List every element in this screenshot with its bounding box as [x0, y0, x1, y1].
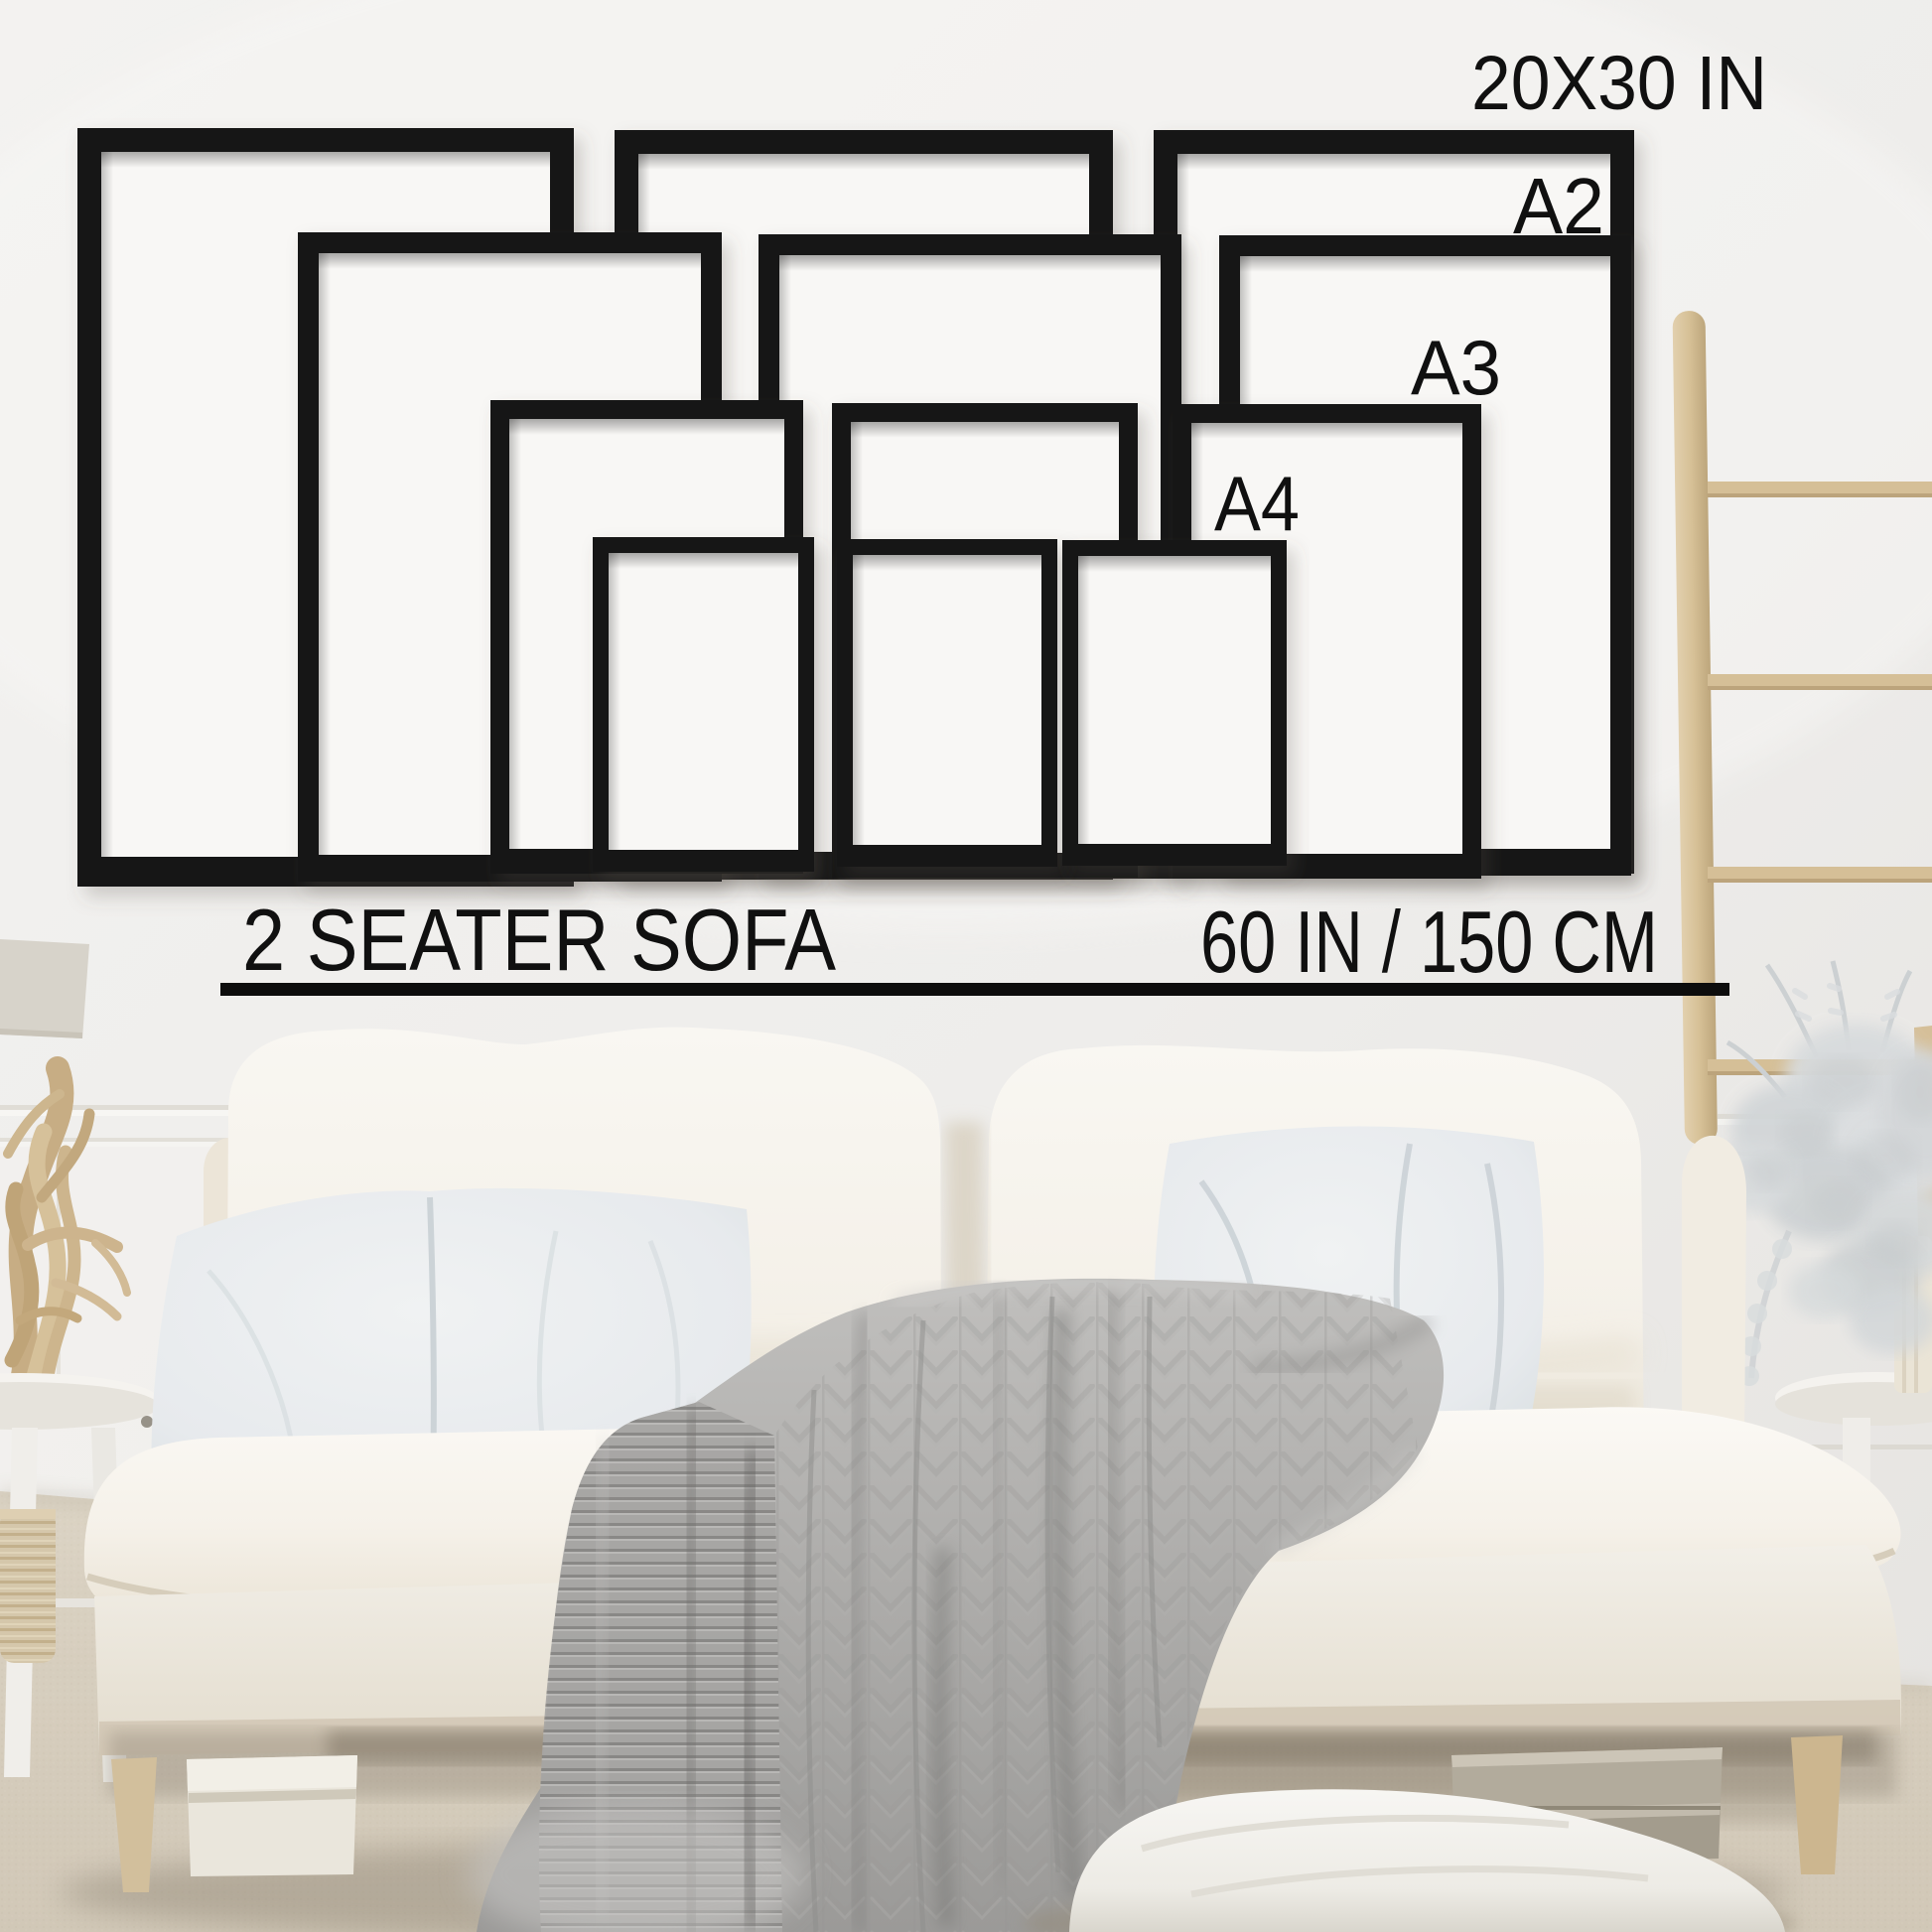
svg-text:A2: A2 [1513, 162, 1604, 250]
svg-text:A3: A3 [1411, 324, 1501, 411]
svg-text:60 IN / 150 CM: 60 IN / 150 CM [1200, 893, 1658, 991]
svg-text:20X30 IN: 20X30 IN [1471, 41, 1767, 126]
svg-text:2 SEATER SOFA: 2 SEATER SOFA [242, 891, 836, 989]
svg-text:A4: A4 [1214, 460, 1300, 547]
